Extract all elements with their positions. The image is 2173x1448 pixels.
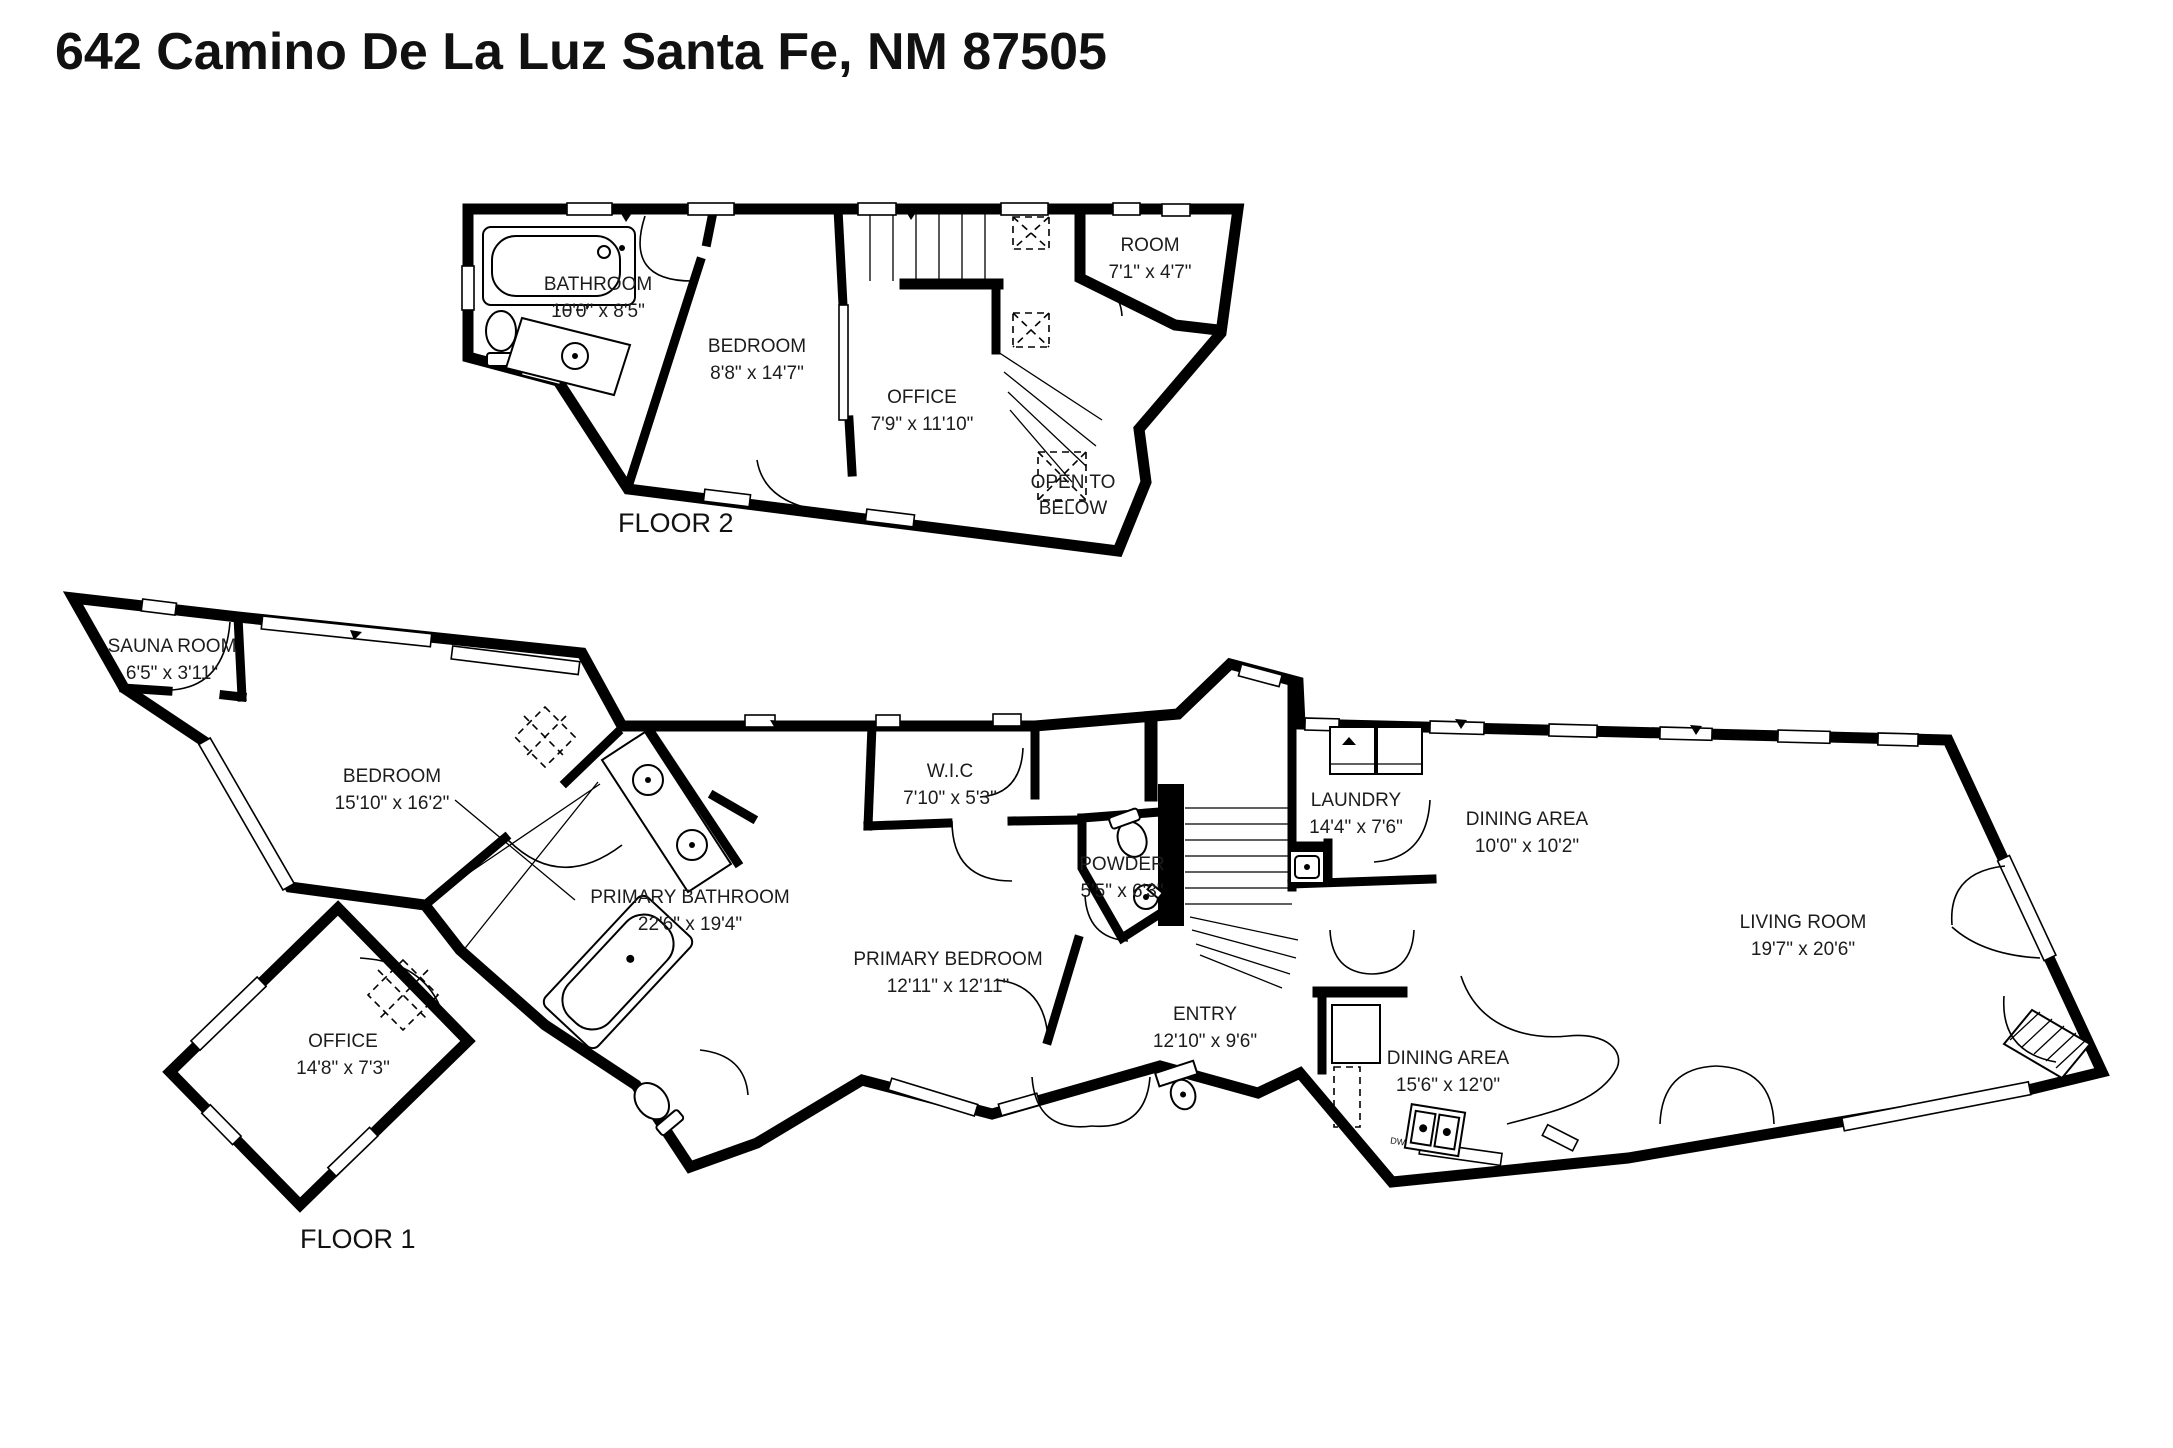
- room-name-bedroom-f2: BEDROOM: [708, 336, 806, 357]
- room-name-entry: ENTRY: [1173, 1004, 1237, 1025]
- laundry-sink-fixture: [1290, 851, 1324, 883]
- floor1-office-walls: [170, 908, 468, 1205]
- room-name-living-room: LIVING ROOM: [1740, 912, 1867, 933]
- room-dims-sauna: 6'5" x 3'11": [126, 663, 218, 684]
- floorplan-page: 642 Camino De La Luz Santa Fe, NM 87505: [0, 0, 2173, 1448]
- room-name-primary-bathroom: PRIMARY BATHROOM: [590, 887, 790, 908]
- room-dims-bathroom-f2: 10'0" x 8'5": [551, 301, 645, 322]
- room-dims-dining-area-1: 10'0" x 10'2": [1475, 836, 1579, 857]
- floor1-label: FLOOR 1: [300, 1224, 416, 1254]
- room-dims-bedroom-f1: 15'10" x 16'2": [335, 793, 450, 814]
- room-name-bedroom-f1: BEDROOM: [343, 766, 441, 787]
- room-name-room-f2: ROOM: [1120, 235, 1179, 256]
- floor2-label: FLOOR 2: [618, 508, 734, 538]
- room-dims-primary-bathroom: 22'6" x 19'4": [638, 914, 742, 935]
- room-name-primary-bedroom: PRIMARY BEDROOM: [853, 949, 1042, 970]
- room-name-laundry: LAUNDRY: [1311, 790, 1402, 811]
- room-name-office-f1: OFFICE: [308, 1031, 378, 1052]
- room-dims-office-f1: 14'8" x 7'3": [296, 1058, 390, 1079]
- room-dims-living-room: 19'7" x 20'6": [1751, 939, 1855, 960]
- room-dims-room-f2: 7'1" x 4'7": [1108, 262, 1191, 283]
- room-dims-dining-area-2: 15'6" x 12'0": [1396, 1075, 1500, 1096]
- room-dims-laundry: 14'4" x 7'6": [1309, 817, 1403, 838]
- room-name-sauna: SAUNA ROOM: [108, 636, 237, 657]
- open-to-below-line1: OPEN TO: [1031, 472, 1116, 493]
- room-dims-entry: 12'10" x 9'6": [1153, 1031, 1257, 1052]
- room-dims-powder: 5'5" x 6'3": [1080, 881, 1163, 902]
- room-name-wic: W.I.C: [927, 761, 973, 782]
- room-dims-bedroom-f2: 8'8" x 14'7": [710, 363, 804, 384]
- room-name-bathroom-f2: BATHROOM: [544, 274, 652, 295]
- room-name-dining-area-1: DINING AREA: [1466, 809, 1589, 830]
- open-to-below-line2: BELOW: [1039, 498, 1108, 519]
- room-name-dining-area-2: DINING AREA: [1387, 1048, 1510, 1069]
- floor2-plan: BATHROOM 10'0" x 8'5" BEDROOM 8'8" x 14'…: [462, 203, 1238, 551]
- room-name-office-f2: OFFICE: [887, 387, 957, 408]
- washer-dryer-fixture: [1330, 727, 1422, 774]
- room-dims-wic: 7'10" x 5'3": [903, 788, 997, 809]
- room-name-powder: POWDER: [1079, 854, 1165, 875]
- room-dims-primary-bedroom: 12'11" x 12'11": [887, 976, 1010, 997]
- floorplan-svg: BATHROOM 10'0" x 8'5" BEDROOM 8'8" x 14'…: [0, 0, 2173, 1448]
- room-dims-office-f2: 7'9" x 11'10": [871, 414, 974, 435]
